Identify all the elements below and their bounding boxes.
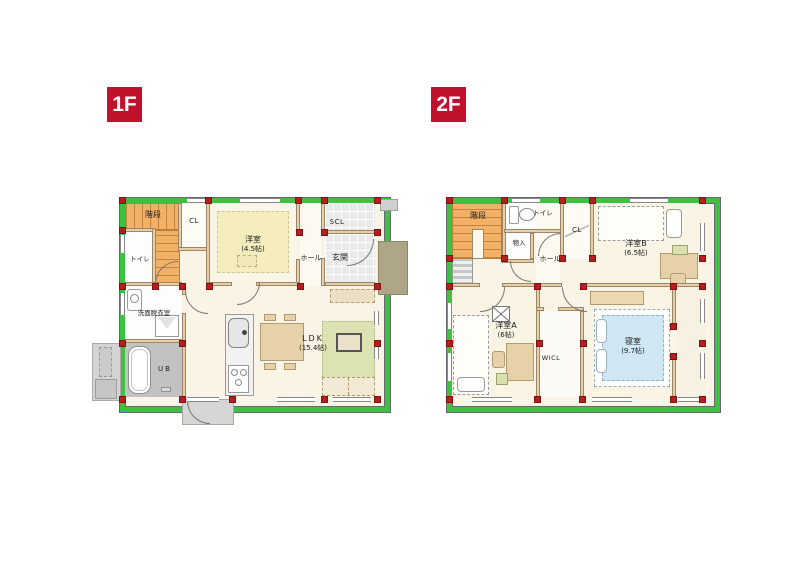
pillar-mark	[179, 283, 186, 290]
interior-wall	[178, 247, 208, 251]
pillar-mark	[579, 396, 586, 403]
sofa-divider	[348, 378, 349, 395]
pillar-mark	[446, 283, 453, 290]
window	[120, 293, 125, 315]
pillar-mark	[501, 255, 508, 262]
pillar-mark	[321, 229, 328, 236]
label-stairs-2f: 階段	[456, 211, 500, 221]
coffee-table	[336, 333, 362, 352]
pillar-mark	[206, 283, 213, 290]
label-ub: UB	[153, 365, 177, 373]
interior-wall	[672, 287, 676, 325]
label-yoshitsu-b: 洋室B(6.5帖)	[604, 239, 668, 257]
bath-drain	[161, 387, 171, 392]
label-senmen: 洗面脱衣室	[130, 310, 178, 318]
window	[277, 397, 315, 402]
pillar-mark	[589, 255, 596, 262]
dining-chair	[264, 314, 276, 321]
pillar-mark	[205, 197, 212, 204]
pillar-mark	[699, 197, 706, 204]
pillar-mark	[374, 340, 381, 347]
room-closet-1f	[182, 203, 206, 251]
interior-wall	[584, 283, 705, 287]
kitchen-faucet	[242, 330, 247, 335]
pillar-mark	[296, 229, 303, 236]
window	[240, 198, 280, 203]
window	[512, 198, 540, 203]
label-cl-1f: CL	[183, 217, 205, 225]
interior-wall	[502, 283, 562, 287]
label-bedroom: 寝室(9.7帖)	[602, 337, 664, 355]
interior-wall	[590, 203, 594, 259]
pillar-mark	[374, 229, 381, 236]
pillar-mark	[321, 396, 328, 403]
floor-1f-badge: 1F	[107, 87, 142, 122]
label-wicl: WICL	[536, 355, 566, 363]
storage-counter	[330, 289, 375, 303]
pillar-mark	[229, 396, 236, 403]
pillar-mark	[374, 197, 381, 204]
label-toilet-1f: トイレ	[123, 256, 157, 264]
stool-yoshitsu-a	[496, 373, 508, 385]
label-cl-2f: CL	[566, 226, 588, 234]
pillar-mark	[670, 396, 677, 403]
dining-chair	[284, 314, 296, 321]
interior-wall	[536, 307, 544, 311]
pillar-mark	[446, 255, 453, 262]
label-ldk: LDK(15.4帖)	[293, 334, 333, 352]
pillar-mark	[580, 283, 587, 290]
window	[447, 353, 452, 381]
interior-wall	[256, 282, 300, 286]
pillar-mark	[179, 340, 186, 347]
burner-icon	[235, 379, 242, 386]
pillar-mark	[589, 197, 596, 204]
pillar-mark	[119, 396, 126, 403]
sink-bowl	[158, 317, 176, 329]
pillar-mark	[501, 197, 508, 204]
label-genkan: 玄関	[328, 253, 352, 263]
window	[374, 311, 379, 325]
pillar-mark	[580, 340, 587, 347]
window	[187, 198, 205, 203]
label-scl: SCL	[326, 218, 348, 226]
floor-2f-badge: 2F	[431, 87, 466, 122]
interior-wall	[325, 282, 375, 286]
burner-icon	[240, 369, 247, 376]
dining-chair	[284, 363, 296, 370]
window	[700, 223, 705, 251]
window	[447, 303, 452, 329]
label-yoshitsu-1f: 洋室(4.5帖)	[218, 235, 288, 253]
entrance-porch	[378, 241, 408, 295]
pillar-mark	[321, 197, 328, 204]
pillar-mark	[534, 283, 541, 290]
pillar-mark	[699, 340, 706, 347]
pillar-mark	[670, 323, 677, 330]
pillar-mark	[119, 283, 126, 290]
window	[592, 397, 632, 402]
terrace-equipment	[99, 347, 112, 377]
desk-yoshitsu-a	[506, 343, 534, 381]
meter-box	[380, 199, 398, 211]
pillar-mark	[446, 396, 453, 403]
desk-plant	[672, 245, 688, 255]
window	[700, 353, 705, 379]
label-toilet-2f: トイレ	[526, 210, 560, 218]
label-hall-1f: ホール	[296, 254, 326, 262]
floor-plan-1f: 階段 トイレ CL 洋室(4.5帖) ホール SCL 玄関 洗面脱衣室 UB L…	[120, 198, 390, 412]
burner-icon	[231, 369, 238, 376]
window	[120, 235, 125, 253]
pillar-mark	[152, 283, 159, 290]
toilet-tank-2f	[509, 206, 519, 224]
window	[700, 299, 705, 323]
window	[630, 198, 668, 203]
label-yoshitsu-a: 洋室A(6帖)	[480, 321, 532, 339]
pillar-mark	[374, 283, 381, 290]
floor-plan-2f: 階段 トイレ 物入 ホール CL 洋室B(6.5帖) 洋室A(6帖) WICL …	[447, 198, 720, 412]
pillar-mark	[699, 396, 706, 403]
pillar-mark	[295, 197, 302, 204]
pillar-mark	[446, 197, 453, 204]
interior-wall	[452, 283, 480, 287]
bathtub-inner	[131, 349, 148, 391]
bed-yoshitsu-b	[598, 206, 664, 241]
pillar-mark	[534, 396, 541, 403]
interior-wall	[125, 339, 182, 343]
interior-wall	[321, 203, 325, 232]
interior-wall	[178, 203, 182, 251]
pillar-mark	[699, 283, 706, 290]
stair-newel	[472, 229, 484, 259]
terrace-step	[95, 379, 117, 399]
interior-wall	[321, 230, 375, 234]
low-table	[237, 255, 257, 267]
pillar-mark	[559, 197, 566, 204]
window	[678, 397, 700, 402]
window	[472, 397, 512, 402]
interior-wall	[580, 311, 584, 397]
floor-plan-canvas: 1F 2F	[0, 0, 800, 571]
window-mark-icon	[492, 306, 510, 322]
pillar-mark	[119, 227, 126, 234]
pillar-mark	[297, 283, 304, 290]
room-hall-1f	[300, 203, 321, 286]
washer-drum	[130, 294, 139, 303]
pillar-mark	[536, 340, 543, 347]
window	[333, 397, 371, 402]
label-hall-2f: ホール	[535, 255, 565, 263]
window	[187, 397, 219, 402]
dining-chair	[264, 363, 276, 370]
pillar-mark	[119, 197, 126, 204]
pillar-mark	[119, 340, 126, 347]
pillow-yoshitsu-a	[457, 377, 485, 392]
pillar-mark	[374, 396, 381, 403]
monoire-door-swing	[510, 261, 531, 282]
chair-yoshitsu-a	[492, 351, 505, 368]
interior-wall	[206, 203, 210, 286]
label-monoire: 物入	[507, 240, 531, 248]
pillar-mark	[699, 255, 706, 262]
bedroom-dresser	[590, 291, 644, 305]
label-stairs-1f: 階段	[131, 210, 175, 220]
pillar-mark	[179, 396, 186, 403]
interior-wall	[182, 313, 186, 397]
pillar-mark	[670, 353, 677, 360]
pillow-yoshitsu-b	[666, 209, 682, 238]
pillar-mark	[446, 340, 453, 347]
pillar-mark	[670, 283, 677, 290]
